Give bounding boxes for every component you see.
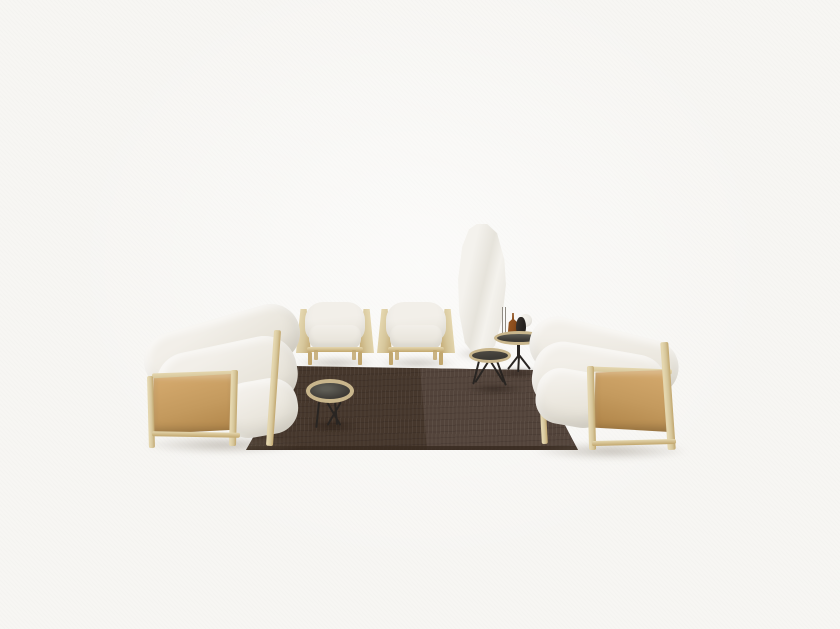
armchair-left-leg (314, 350, 318, 360)
armchair-right-leg (439, 352, 443, 365)
left-sofa (144, 302, 304, 454)
armchair-left (296, 301, 374, 367)
armchair-right-seat-cushion (390, 325, 442, 349)
armchair-right (377, 301, 455, 367)
armchair-right-leg (395, 350, 399, 360)
furniture-product-photo (0, 0, 840, 629)
side-table-high-stem (517, 344, 520, 358)
armchair-left-leg (358, 352, 362, 365)
armchair-left-leg (308, 352, 312, 365)
left-sofa-leather-panel (152, 374, 234, 434)
glass-rods-decor (502, 307, 508, 334)
coffee-table (304, 376, 358, 430)
coffee-table-shadow (306, 420, 358, 432)
coffee-table-top (306, 379, 354, 403)
armchair-left-leg (352, 350, 356, 360)
armchair-right-leg (433, 350, 437, 360)
right-sofa (534, 316, 686, 458)
armchair-right-shadow (375, 357, 459, 369)
right-sofa-leather-panel (594, 370, 670, 432)
left-sofa-shadow (142, 436, 306, 454)
armchair-right-leg (389, 352, 393, 365)
armchair-left-seat-cushion (309, 325, 361, 349)
